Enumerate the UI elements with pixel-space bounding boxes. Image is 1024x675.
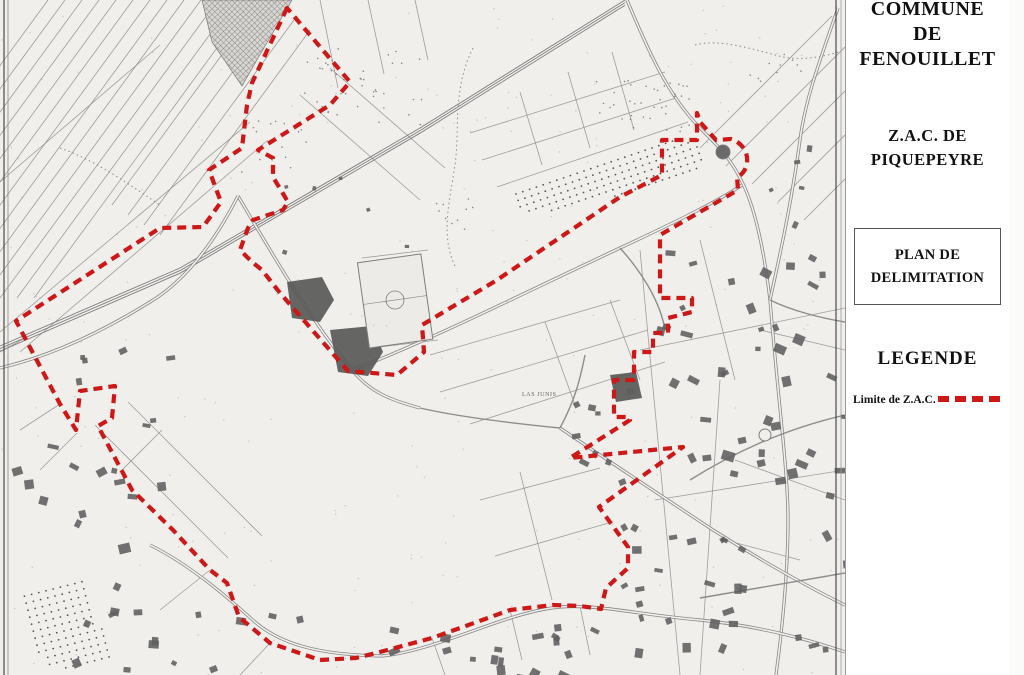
cadastral-map-svg: LAS JUNIS <box>0 0 845 675</box>
page-margin <box>1009 0 1024 675</box>
zac-title-line2: PIQUEPEYRE <box>846 148 1009 172</box>
legend-red-dash-sample <box>938 396 1000 402</box>
dark-building-blocks <box>287 277 642 402</box>
legend-heading: LEGENDE <box>846 348 1009 370</box>
roundabouts <box>716 145 771 441</box>
legend-item-label: Limite de Z.A.C. <box>853 394 936 406</box>
orchard-dot-grids <box>24 140 703 668</box>
title-block-sidebar: COMMUNE DE FENOUILLET Z.A.C. DE PIQUEPEY… <box>845 0 1010 675</box>
zac-title-line1: Z.A.C. DE <box>846 124 1009 148</box>
commune-title-line2: DE <box>846 22 1009 47</box>
zac-title: Z.A.C. DE PIQUEPEYRE <box>846 124 1009 172</box>
commune-title: COMMUNE DE FENOUILLET <box>846 0 1009 72</box>
commune-title-line1: COMMUNE <box>846 0 1009 22</box>
cadastral-map: LAS JUNIS <box>0 0 845 675</box>
plan-title-box: PLAN DE DELIMITATION <box>854 228 1001 305</box>
place-name-label: LAS JUNIS <box>522 392 557 398</box>
plan-title-line2: DELIMITATION <box>871 267 984 290</box>
scanned-plan-page: LAS JUNIS COMMUNE DE FENOUILLET Z.A.C. D… <box>0 0 1024 675</box>
legend-item-limite-zac: Limite de Z.A.C. <box>853 393 1003 407</box>
svg-text:LAS JUNIS: LAS JUNIS <box>522 392 557 398</box>
commune-title-line3: FENOUILLET <box>846 47 1009 72</box>
plan-title-line1: PLAN DE <box>895 244 960 267</box>
